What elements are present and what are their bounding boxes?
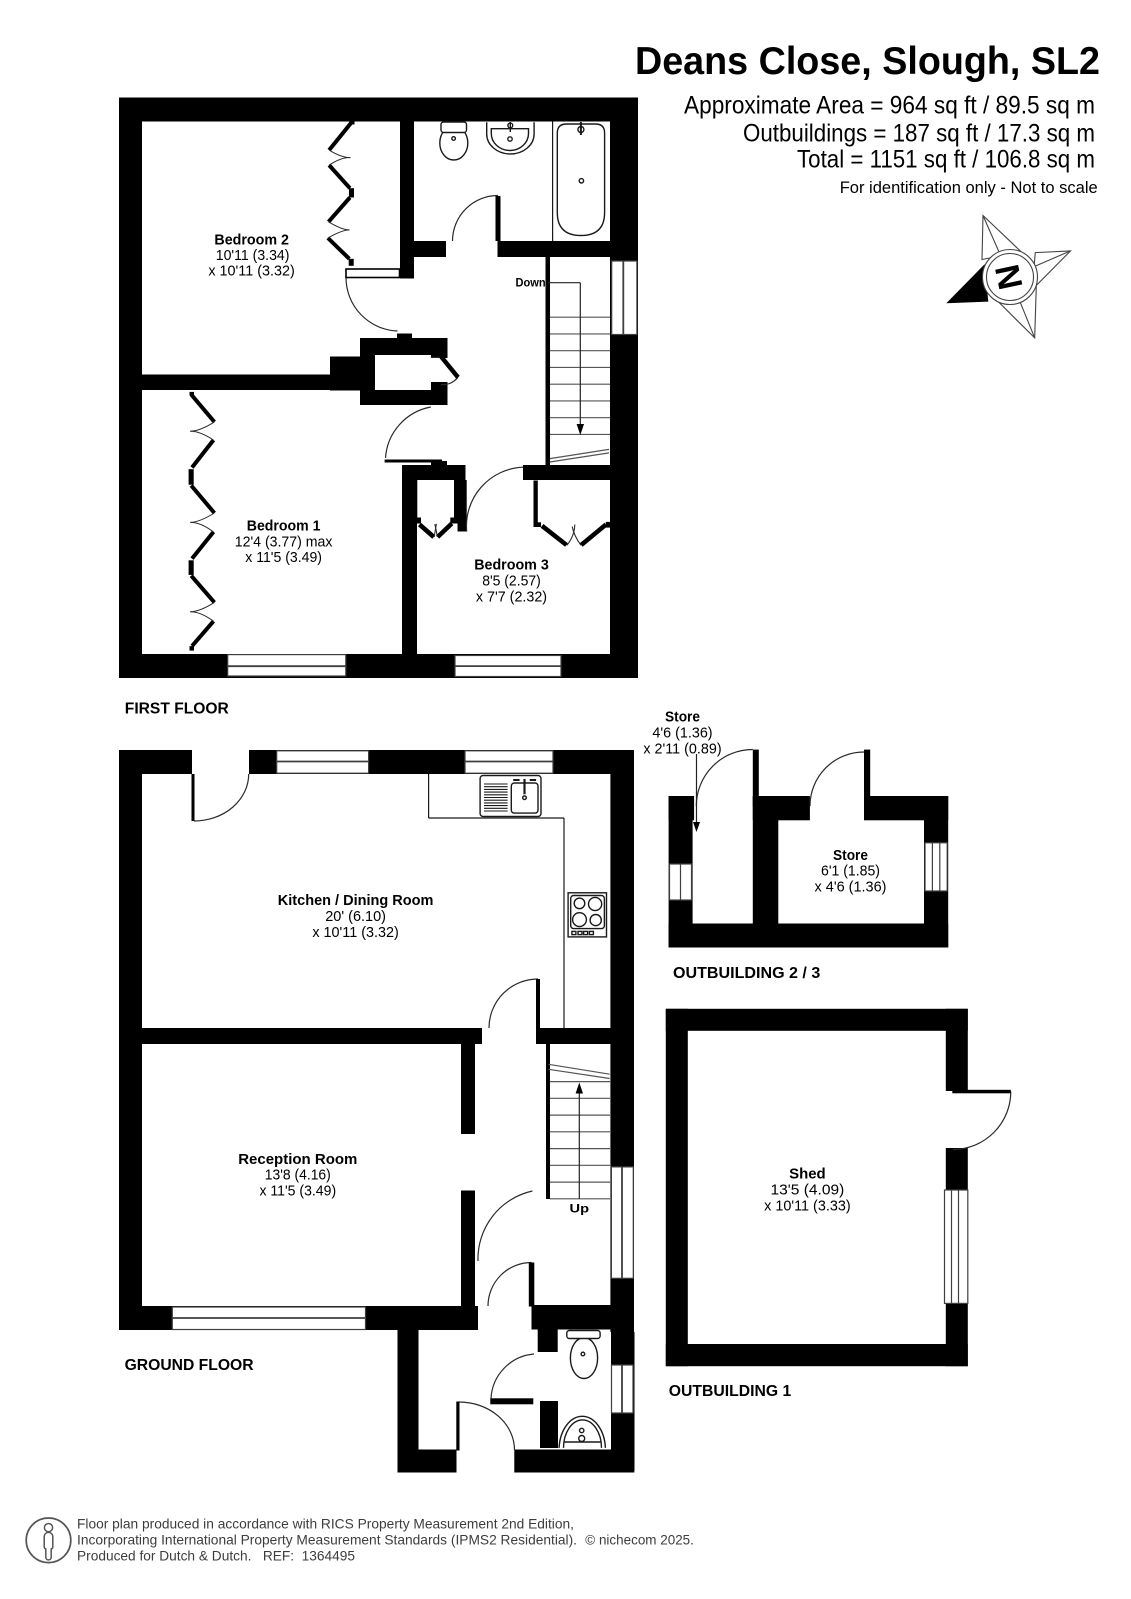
svg-text:FIRST FLOOR: FIRST FLOOR: [125, 701, 229, 718]
svg-text:x 4'6 (1.36): x 4'6 (1.36): [815, 879, 887, 896]
svg-text:Reception Room: Reception Room: [238, 1151, 357, 1168]
svg-text:8'5 (2.57): 8'5 (2.57): [482, 572, 541, 589]
svg-text:x 7'7 (2.32): x 7'7 (2.32): [476, 588, 547, 605]
svg-text:Store: Store: [665, 709, 700, 726]
svg-text:© nichecom 2025.: © nichecom 2025.: [585, 1532, 694, 1548]
svg-text:Store: Store: [833, 847, 868, 864]
svg-text:6'1 (1.85): 6'1 (1.85): [821, 863, 880, 880]
svg-text:x 11'5 (3.49): x 11'5 (3.49): [259, 1182, 336, 1199]
svg-text:x 10'11 (3.32): x 10'11 (3.32): [208, 263, 295, 280]
svg-text:Approximate Area = 964 sq ft /: Approximate Area = 964 sq ft / 89.5 sq m: [684, 92, 1095, 120]
svg-text:x 2'11 (0.89): x 2'11 (0.89): [643, 740, 721, 757]
svg-text:For identification only - Not: For identification only - Not to scale: [840, 179, 1098, 197]
svg-text:10'11 (3.34): 10'11 (3.34): [216, 247, 290, 264]
svg-text:GROUND FLOOR: GROUND FLOOR: [125, 1357, 254, 1374]
svg-text:20' (6.10): 20' (6.10): [325, 908, 386, 925]
svg-text:Bedroom 2: Bedroom 2: [214, 232, 289, 249]
svg-text:Outbuildings = 187 sq ft / 17.: Outbuildings = 187 sq ft / 17.3 sq m: [743, 120, 1095, 148]
svg-text:x 11'5 (3.49): x 11'5 (3.49): [245, 549, 322, 566]
svg-text:Produced for Dutch & Dutch.: Produced for Dutch & Dutch. REF: 1364495: [77, 1548, 355, 1564]
svg-text:13'5 (4.09): 13'5 (4.09): [771, 1181, 845, 1198]
svg-text:Shed: Shed: [789, 1166, 826, 1183]
svg-text:OUTBUILDING 2 / 3: OUTBUILDING 2 / 3: [673, 965, 820, 982]
svg-text:x 10'11 (3.33): x 10'11 (3.33): [764, 1197, 851, 1214]
svg-text:Floor plan produced in accorda: Floor plan produced in accordance with R…: [77, 1516, 574, 1532]
svg-text:13'8 (4.16): 13'8 (4.16): [265, 1167, 331, 1184]
svg-text:Bedroom 1: Bedroom 1: [247, 517, 321, 534]
svg-text:OUTBUILDING 1: OUTBUILDING 1: [669, 1383, 792, 1400]
svg-text:Bedroom 3: Bedroom 3: [474, 557, 549, 574]
svg-text:12'4 (3.77) max: 12'4 (3.77) max: [235, 533, 333, 550]
svg-text:Total = 1151 sq ft / 106.8 sq: Total = 1151 sq ft / 106.8 sq m: [797, 146, 1095, 174]
svg-text:Deans Close, Slough, SL2: Deans Close, Slough, SL2: [635, 40, 1100, 83]
svg-text:Up: Up: [570, 1204, 590, 1216]
svg-text:Kitchen / Dining Room: Kitchen / Dining Room: [278, 892, 434, 909]
svg-text:Down: Down: [516, 278, 546, 290]
svg-text:4'6 (1.36): 4'6 (1.36): [652, 724, 712, 741]
svg-text:x 10'11 (3.32): x 10'11 (3.32): [312, 924, 399, 941]
svg-text:Incorporating International Pr: Incorporating International Property Mea…: [77, 1532, 577, 1548]
